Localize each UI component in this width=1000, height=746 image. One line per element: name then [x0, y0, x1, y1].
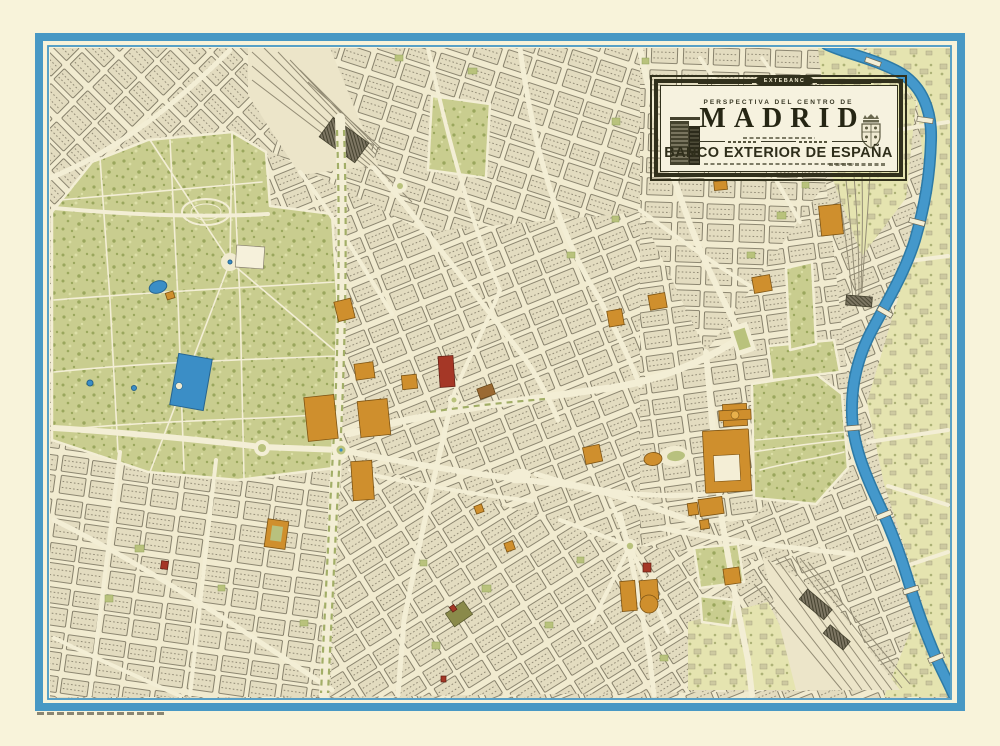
botanic-green — [428, 96, 490, 178]
title-cartouche: EXTEBANC PERSPECTIVA DEL CENTRO DE MADRI… — [650, 75, 907, 181]
cartouche-tab-row: EXTEBANC — [698, 75, 871, 87]
map-title: MADRID — [661, 105, 897, 133]
red-landmark — [438, 355, 455, 387]
bank-name: BANCO EXTERIOR DE ESPAÑA — [661, 145, 897, 161]
prado-museum — [351, 460, 375, 500]
almudena-cathedral — [719, 403, 751, 426]
san-francisco-el-grande — [640, 595, 658, 613]
bank-brand-tab: EXTEBANC — [756, 77, 813, 85]
banco-de-espana — [304, 395, 338, 442]
subtitle-microtext — [743, 137, 815, 140]
rule-row — [690, 141, 868, 144]
principe-pio-hill-green — [786, 262, 816, 350]
tab-rule-left — [698, 79, 752, 84]
palacio-de-liria — [752, 275, 773, 294]
madrid-map-poster: EXTEBANC PERSPECTIVA DEL CENTRO DE MADRI… — [0, 0, 1000, 746]
tab-rule-right — [817, 79, 871, 84]
imprint-microtext — [37, 712, 165, 715]
cason-building — [235, 245, 264, 269]
palacio-comunicaciones — [357, 399, 391, 438]
credit-microtext — [829, 163, 887, 166]
